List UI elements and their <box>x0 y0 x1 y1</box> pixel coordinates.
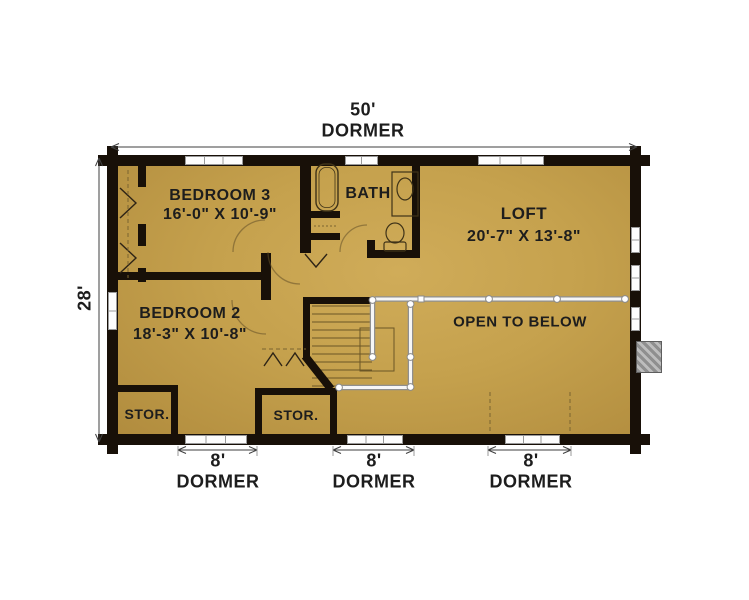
dormer3-width: 8' <box>523 451 538 472</box>
dormer2-label: DORMER <box>333 472 416 493</box>
dormer3-label: DORMER <box>490 472 573 493</box>
toilet <box>384 223 406 251</box>
loft-size: 20'-7" X 13'-8" <box>467 228 581 246</box>
angled-wall <box>305 356 331 389</box>
bedroom3-name: BEDROOM 3 <box>169 187 270 205</box>
dormer2-width: 8' <box>366 451 381 472</box>
bedroom2-name: BEDROOM 2 <box>139 305 240 323</box>
top-dormer-label: DORMER <box>322 121 405 142</box>
bath-name: BATH <box>345 185 390 203</box>
plan-graphics <box>0 0 749 600</box>
bathtub <box>316 164 338 211</box>
bedroom2-size: 18'-3" X 10'-8" <box>133 326 247 344</box>
loft-railing <box>336 296 629 391</box>
overall-width-label: 50' <box>350 100 376 121</box>
overall-depth-label: 28' <box>75 285 96 311</box>
storage2-label: STOR. <box>273 407 318 423</box>
bedroom3-size: 16'-0" X 10'-9" <box>163 206 277 224</box>
dormer1-label: DORMER <box>177 472 260 493</box>
sink <box>392 172 418 216</box>
staircase <box>312 306 394 386</box>
loft-name: LOFT <box>501 204 547 224</box>
railing-posts <box>336 296 629 391</box>
dormer1-width: 8' <box>210 451 225 472</box>
storage1-label: STOR. <box>124 406 169 422</box>
open-to-below-label: OPEN TO BELOW <box>453 314 587 331</box>
floor-plan-canvas: 50' DORMER 28' BEDROOM 3 16'-0" X 10'-9"… <box>0 0 749 600</box>
door-swing-arcs <box>232 220 367 334</box>
